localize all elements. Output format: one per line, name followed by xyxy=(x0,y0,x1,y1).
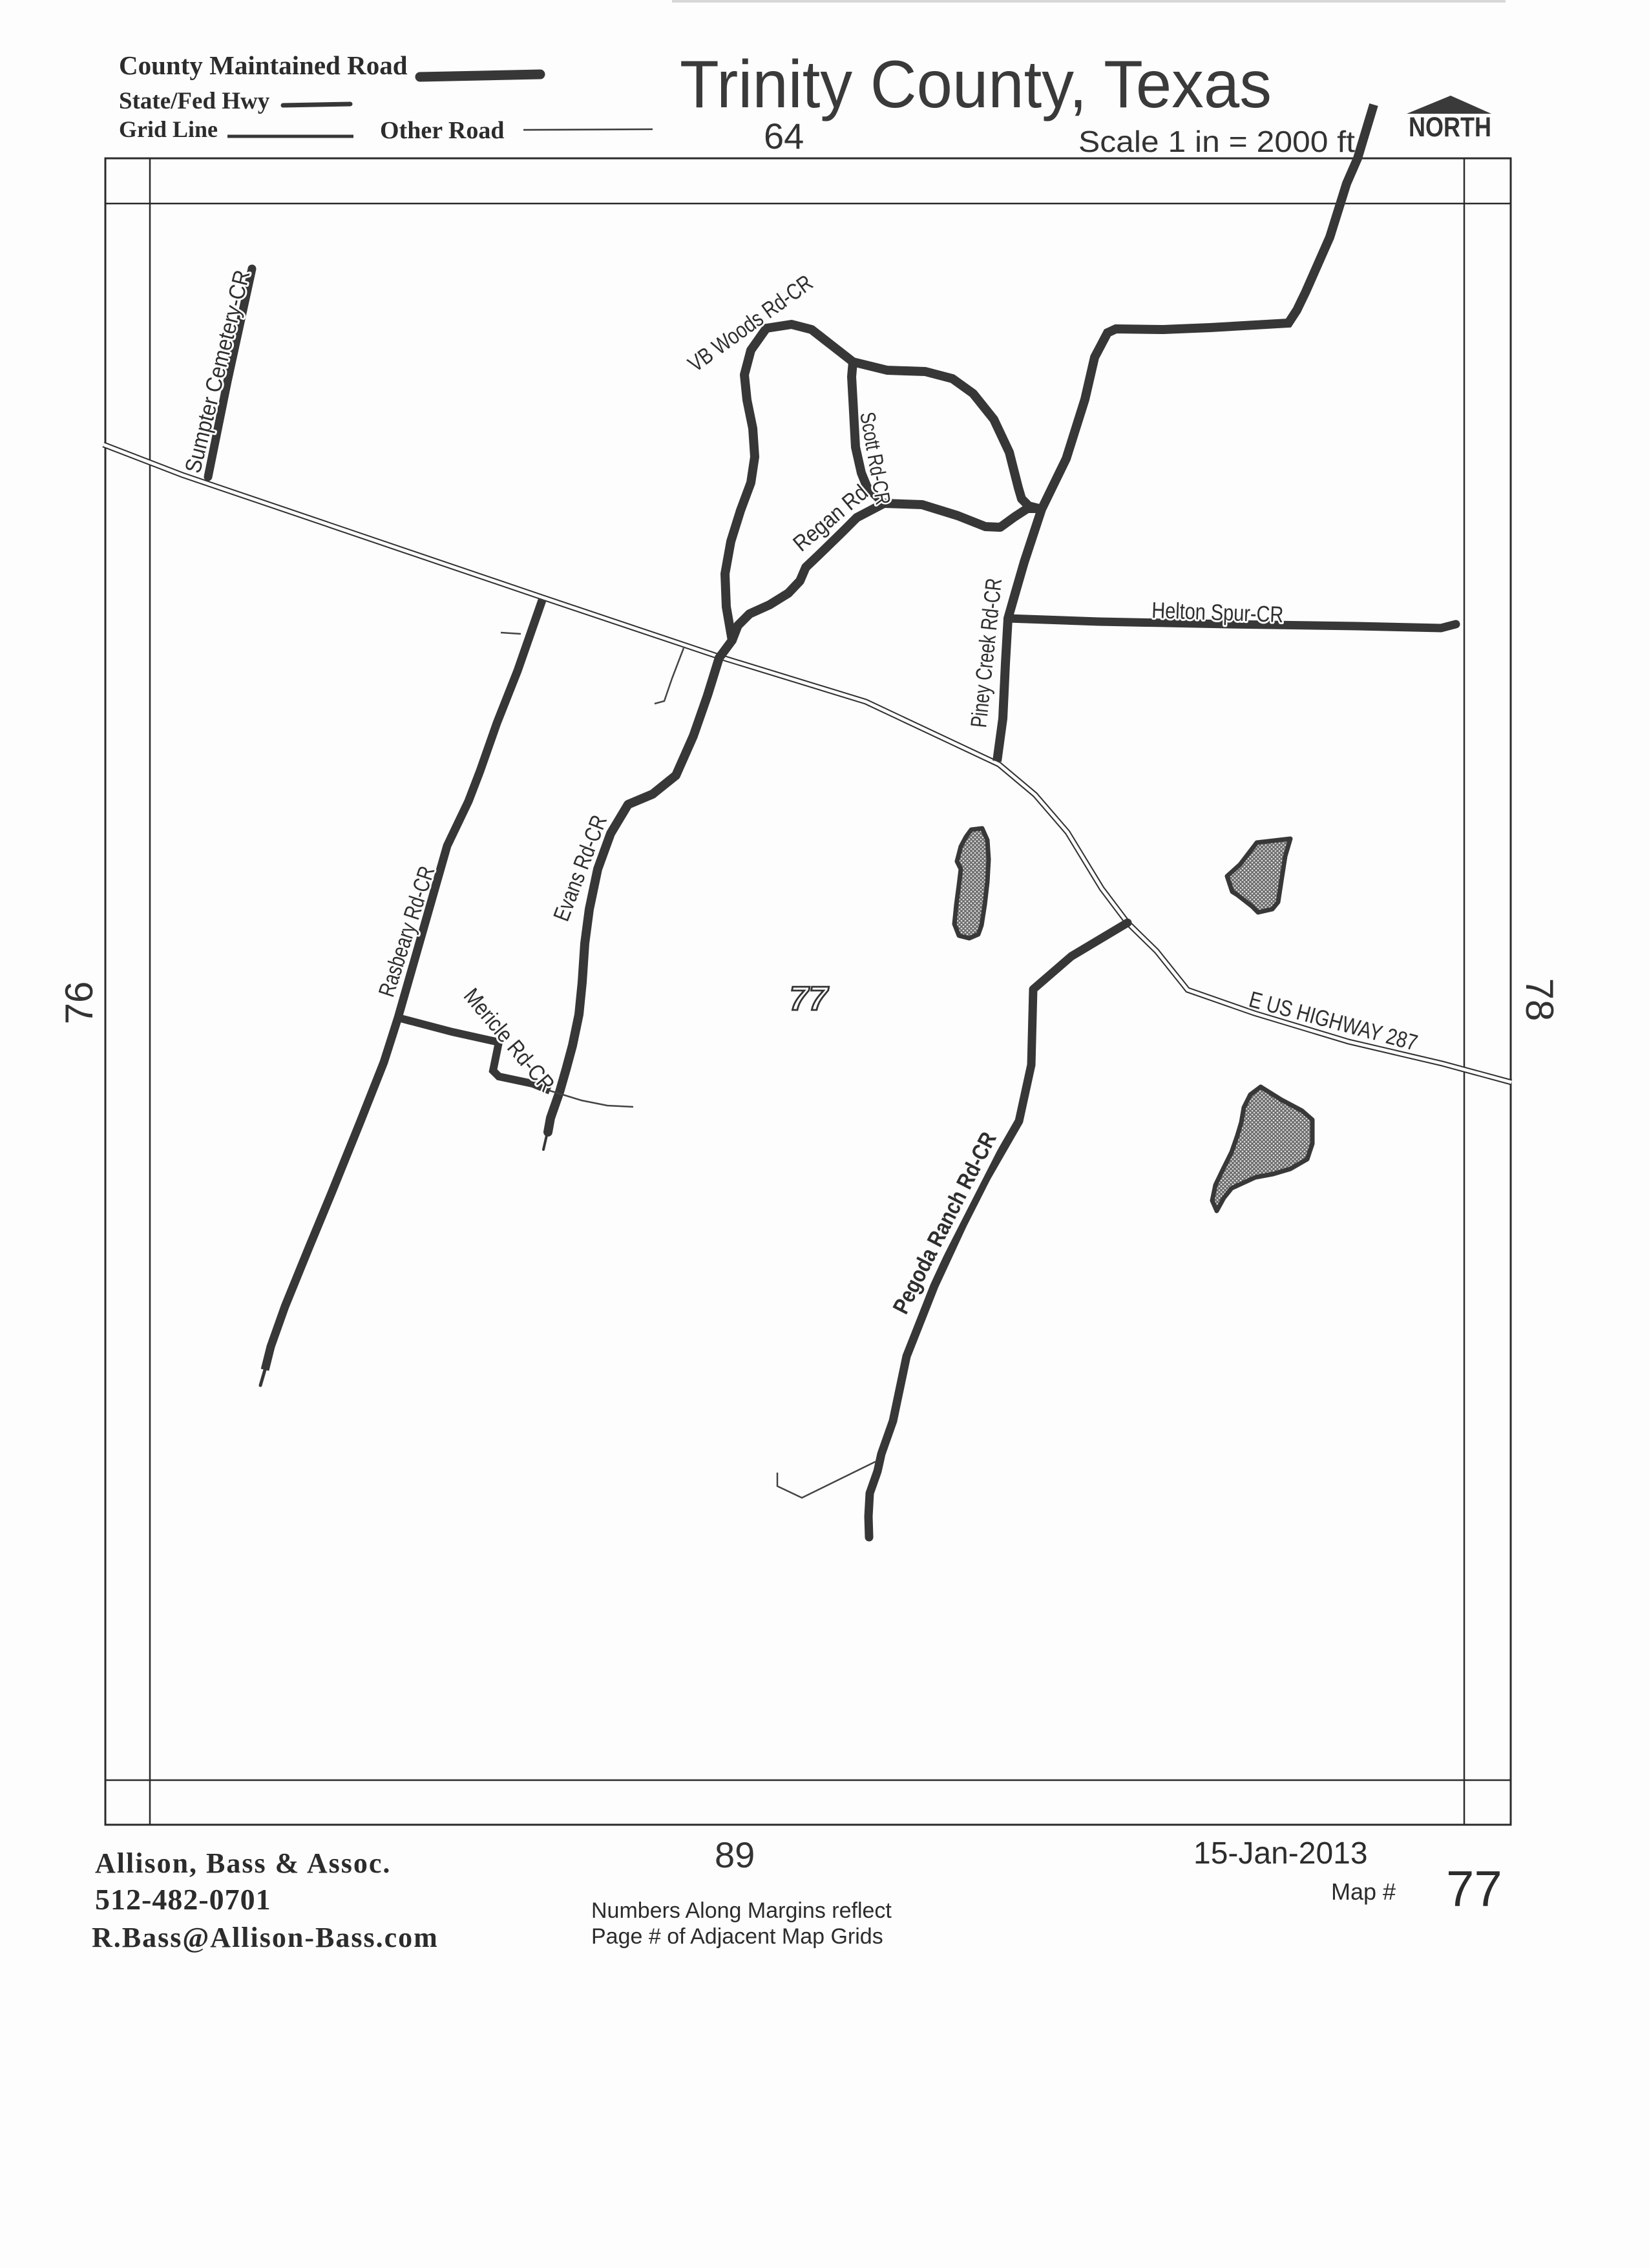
svg-text:512-482-0701: 512-482-0701 xyxy=(95,1883,271,1916)
svg-text:77: 77 xyxy=(1446,1860,1502,1917)
svg-text:Page # of Adjacent Map Grids: Page # of Adjacent Map Grids xyxy=(591,1924,883,1949)
svg-text:Numbers Along Margins reflect: Numbers Along Margins reflect xyxy=(591,1898,892,1923)
svg-text:78: 78 xyxy=(1518,978,1561,1022)
svg-text:Helton Spur-CR: Helton Spur-CR xyxy=(1151,598,1284,627)
svg-text:NORTH: NORTH xyxy=(1409,112,1491,143)
svg-text:76: 76 xyxy=(58,982,101,1025)
svg-text:Map #: Map # xyxy=(1331,1878,1396,1905)
svg-text:Scale 1 in = 2000 ft: Scale 1 in = 2000 ft xyxy=(1078,125,1355,158)
svg-text:Other Road: Other Road xyxy=(380,117,504,144)
svg-text:Grid Line: Grid Line xyxy=(119,116,218,142)
svg-text:89: 89 xyxy=(715,1834,755,1875)
svg-text:R.Bass@Allison-Bass.com: R.Bass@Allison-Bass.com xyxy=(92,1922,439,1953)
svg-text:15-Jan-2013: 15-Jan-2013 xyxy=(1193,1836,1368,1871)
svg-text:Trinity County, Texas: Trinity County, Texas xyxy=(680,47,1272,122)
svg-text:64: 64 xyxy=(764,116,804,156)
svg-text:State/Fed Hwy: State/Fed Hwy xyxy=(119,88,270,114)
svg-text:Allison, Bass & Assoc.: Allison, Bass & Assoc. xyxy=(95,1847,391,1879)
svg-text:County Maintained Road: County Maintained Road xyxy=(119,50,408,80)
svg-text:77: 77 xyxy=(790,980,829,1018)
